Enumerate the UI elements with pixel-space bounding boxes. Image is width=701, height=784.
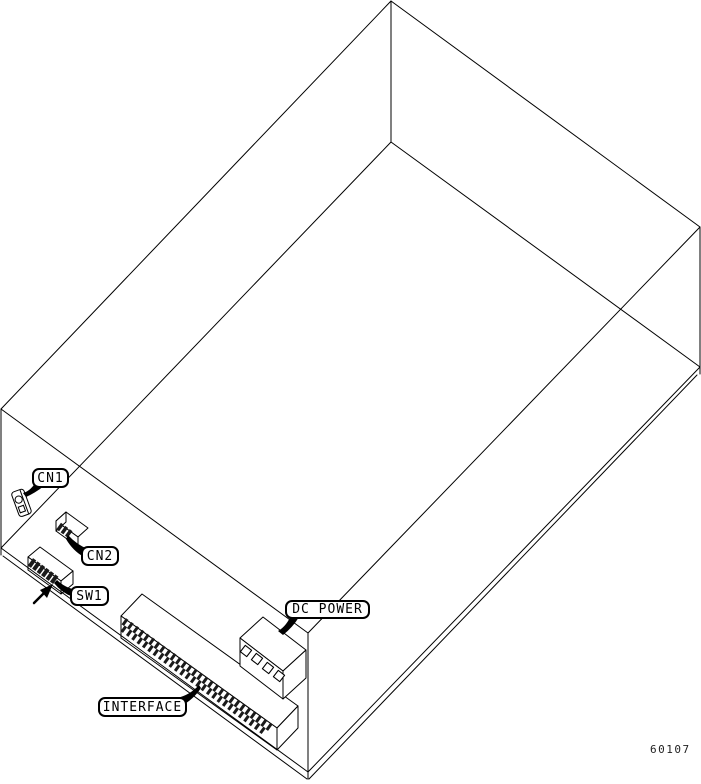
callout-cn1: CN1 (32, 468, 69, 488)
enclosure-wireframe (1, 1, 700, 779)
callout-sw1-label: SW1 (76, 589, 102, 604)
callout-cn2-label: CN2 (87, 549, 113, 564)
part-number: 60107 (650, 743, 691, 756)
technical-illustration: CN1 CN2 SW1 DC POWER INTERFACE 60107 (0, 0, 701, 784)
sw1-pointer-arrow (34, 584, 53, 603)
callout-interface-label: INTERFACE (103, 700, 182, 715)
enclosure-drawing (0, 0, 701, 784)
enclosure-base-edges (1, 367, 700, 779)
callout-dc-power-label: DC POWER (292, 602, 363, 617)
callout-interface: INTERFACE (98, 697, 187, 717)
callout-dc-power: DC POWER (285, 600, 370, 619)
callout-cn1-label: CN1 (37, 471, 63, 486)
callout-cn2: CN2 (81, 546, 119, 566)
callout-sw1: SW1 (70, 586, 109, 606)
